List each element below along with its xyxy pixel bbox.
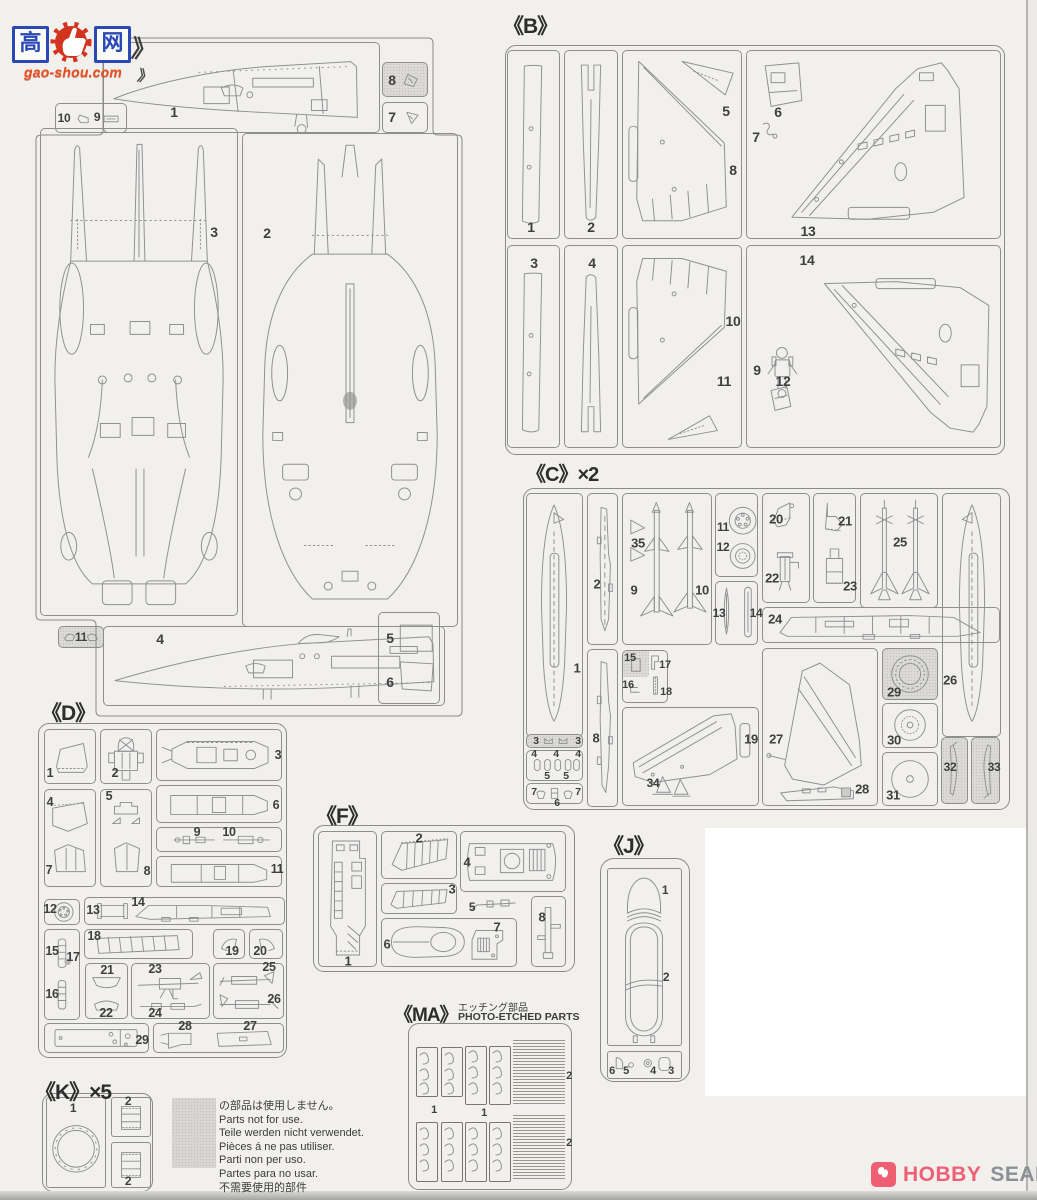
part-number: 1 (527, 219, 535, 235)
part-number: 11 (717, 373, 731, 389)
part-number: 7 (494, 920, 501, 935)
white-redaction-area (705, 828, 1027, 1096)
part-number: 2 (125, 1174, 131, 1188)
sprue-j-label: 《J》 (603, 830, 654, 860)
part-number: 4 (575, 748, 581, 760)
part-number: 10 (222, 825, 235, 839)
part-number: 2 (112, 766, 119, 780)
part-number: 11 (271, 862, 284, 876)
watermark-char-right: 网 (94, 26, 131, 63)
part-number: 5 (544, 770, 550, 782)
part-number: 6 (554, 797, 560, 809)
part-number: 14 (131, 895, 144, 909)
part-number: 25 (893, 535, 907, 550)
part-number: 11 (717, 520, 729, 534)
part-number: 4 (588, 255, 596, 271)
part-number: 1 (345, 954, 352, 969)
part-number: 7 (575, 786, 581, 798)
part-number: 12 (717, 540, 730, 554)
part-number: 14 (800, 252, 815, 268)
sprue-c-label: 《C》×2 (526, 458, 598, 487)
note-line-zh: 不需要使用的部件 (219, 1182, 434, 1196)
part-number: 3 (668, 1065, 674, 1077)
part-number: 3 (449, 882, 456, 897)
part-number: 5 (563, 770, 569, 782)
part-number: 1 (170, 104, 178, 120)
hobbysearch-logo: HOBBY SEARCH (871, 1162, 1037, 1187)
part-number: 20 (253, 944, 266, 958)
part-number: 23 (843, 579, 857, 594)
part-number: 7 (531, 786, 537, 798)
watermark-domain: gao-shou.com (24, 64, 122, 80)
part-number: 15 (624, 652, 636, 664)
watermark-gear-icon (46, 12, 96, 68)
part-number: 4 (156, 631, 164, 647)
part-number: 22 (765, 571, 779, 586)
part-number: 2 (566, 1070, 572, 1082)
part-number: 1 (431, 1104, 437, 1116)
part-number: 8 (593, 731, 600, 746)
part-number: 24 (768, 612, 782, 627)
sprue-d-label: 《D》 (41, 697, 95, 727)
part-number: 3 (530, 255, 538, 271)
part-number: 16 (45, 987, 58, 1001)
part-number: 2 (416, 831, 423, 846)
part-number: 7 (388, 109, 396, 125)
note-line-de: Teile werden nicht verwendet. (219, 1127, 434, 1141)
part-number: 2 (566, 1137, 572, 1149)
part-number: 22 (99, 1006, 112, 1020)
part-number: 6 (386, 674, 394, 690)
part-number: 7 (752, 129, 760, 145)
part-number: 16 (622, 679, 634, 691)
part-number: 1 (481, 1107, 487, 1119)
part-number: 3 (575, 735, 581, 747)
part-number: 30 (887, 733, 901, 748)
part-number: 5 (386, 630, 394, 646)
part-number: 2 (594, 577, 601, 592)
part-number: 3 (533, 735, 539, 747)
part-number: 9 (194, 825, 201, 839)
part-number: 6 (774, 104, 782, 120)
part-number: 4 (553, 748, 559, 760)
part-number: 9 (753, 362, 761, 378)
watermark-chevron: 》 (130, 29, 159, 67)
not-for-use-swatch (172, 1098, 216, 1168)
part-number: 8 (539, 910, 546, 925)
part-number: 3 (210, 224, 218, 240)
note-line-es: Partes para no usar. (219, 1168, 434, 1182)
sprue-ma-subtitle-en: PHOTO-ETCHED PARTS (458, 1011, 580, 1023)
part-number: 12 (776, 373, 791, 389)
part-number: 10 (695, 583, 709, 598)
part-number: 1 (574, 661, 581, 676)
sprue-ma-label: 《MA》 (394, 1000, 458, 1027)
part-number: 8 (144, 864, 151, 878)
part-number: 6 (273, 798, 280, 812)
watermark-char-left: 高 (12, 26, 49, 63)
part-number: 17 (66, 950, 79, 964)
part-number: 29 (887, 685, 901, 700)
hobbysearch-word-search: SEARCH (990, 1163, 1037, 1187)
part-number: 2 (587, 219, 595, 235)
part-number: 24 (148, 1006, 161, 1020)
sprue-b-label: 《B》 (503, 10, 557, 40)
part-number: 7 (46, 863, 53, 877)
hobbysearch-flame-icon (871, 1162, 896, 1187)
sprue-f-label: 《F》 (316, 800, 368, 830)
watermark-chevron-small: 》 (136, 64, 156, 88)
part-number: 31 (886, 788, 900, 803)
part-number: 21 (100, 963, 113, 977)
part-number: 1 (70, 1101, 76, 1115)
note-line-fr: Pièces á ne pas utiliser. (219, 1141, 434, 1155)
part-number: 13 (713, 606, 726, 620)
part-number: 3 (275, 748, 282, 762)
hobbysearch-word-hobby: HOBBY (903, 1163, 981, 1187)
part-number: 17 (659, 659, 671, 671)
part-number: 4 (650, 1065, 656, 1077)
part-number: 23 (148, 962, 161, 976)
part-number: 6 (384, 937, 391, 952)
part-number: 19 (744, 732, 758, 747)
part-number: 4 (47, 795, 54, 809)
part-number: 2 (125, 1094, 131, 1108)
page-edge-strip (1028, 0, 1037, 1200)
part-number: 1 (662, 883, 668, 897)
part-number: 13 (801, 223, 816, 239)
part-number: 5 (623, 1065, 629, 1077)
part-number: 5 (722, 103, 730, 119)
not-for-use-note: の部品は使用しません。 Parts not for use. Teile wer… (219, 1100, 434, 1195)
part-number: 2 (263, 225, 271, 241)
part-number: 6 (609, 1065, 615, 1077)
part-number: 9 (94, 110, 100, 124)
part-number: 28 (855, 782, 869, 797)
watermark: 高 网 》 gao-shou.com 》 (10, 12, 200, 92)
part-number: 18 (660, 686, 672, 698)
part-number: 19 (225, 944, 238, 958)
note-line-jp: の部品は使用しません。 (219, 1100, 434, 1114)
part-number: 12 (43, 902, 56, 916)
part-number: 4 (531, 748, 537, 760)
part-number: 15 (45, 944, 58, 958)
part-number: 29 (135, 1033, 148, 1047)
part-number: 4 (464, 855, 471, 870)
page-bottom-shadow (0, 1191, 1037, 1200)
part-number: 32 (944, 760, 957, 774)
part-number: 20 (769, 512, 783, 527)
part-number: 5 (106, 789, 113, 803)
part-number: 10 (726, 313, 741, 329)
note-line-it: Parti non per uso. (219, 1154, 434, 1168)
part-number: 25 (262, 960, 275, 974)
part-number: 35 (631, 536, 645, 551)
part-number: 26 (943, 673, 957, 688)
part-number: 21 (838, 514, 852, 529)
part-number: 18 (87, 929, 100, 943)
part-number: 9 (631, 583, 638, 598)
part-number: 33 (988, 760, 1001, 774)
part-number: 28 (178, 1019, 191, 1033)
instruction-sheet-page: 《B》 (0, 0, 1037, 1200)
part-number: 11 (75, 630, 87, 644)
part-number: 26 (267, 992, 280, 1006)
part-number: 27 (769, 732, 783, 747)
part-number: 13 (86, 903, 99, 917)
part-number: 10 (58, 111, 71, 125)
part-number: 8 (388, 72, 396, 88)
note-line-en: Parts not for use. (219, 1114, 434, 1128)
part-number: 5 (469, 900, 475, 914)
part-number: 14 (750, 606, 763, 620)
part-number: 2 (663, 970, 669, 984)
part-number: 34 (647, 776, 660, 790)
part-number: 27 (243, 1019, 256, 1033)
part-number: 1 (47, 766, 54, 780)
part-number: 8 (729, 162, 737, 178)
